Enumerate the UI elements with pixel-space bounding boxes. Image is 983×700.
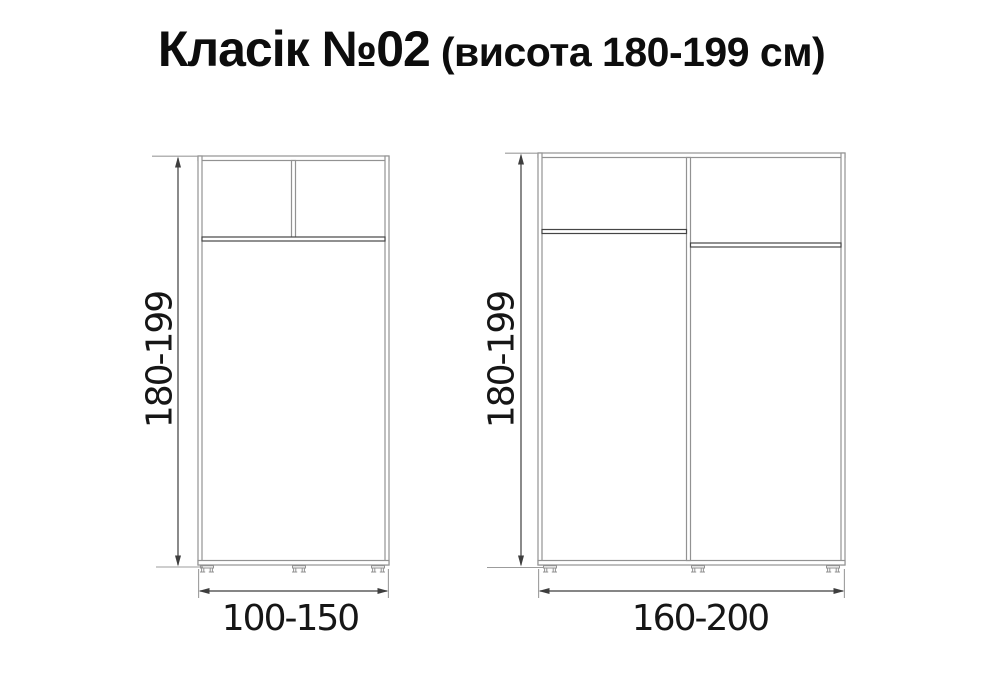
mezzanine-shelf [202,237,385,241]
arrow-down-icon [175,556,181,567]
right-height-dimension-label: 180-199 [482,292,523,429]
arrow-right-icon [834,588,845,594]
left-extension-lines [152,156,388,598]
wardrobe-foot [371,566,385,572]
right-mezzanine-shelf [691,243,842,247]
left-wardrobe-drawing: 180-199 100-150 [140,156,390,639]
page: { "title": { "main": "Класік №02", "sub"… [0,0,983,700]
wardrobe-dimension-diagram: 180-199 100-150 [0,0,983,700]
top-panel [538,153,845,158]
arrow-left-icon [199,588,210,594]
arrow-up-icon [518,154,524,165]
top-panel [198,156,389,161]
left-height-dimension-label: 180-199 [140,292,181,429]
right-width-dimension-label: 160-200 [632,598,769,639]
arrow-left-icon [539,588,550,594]
right-wardrobe-drawing: 180-199 160-200 [482,153,846,639]
left-wardrobe-panels [198,156,389,572]
left-side-panel [198,156,202,565]
arrow-down-icon [518,556,524,567]
wardrobe-foot [543,566,557,572]
center-divider [687,158,691,561]
mezzanine-divider [292,161,296,238]
right-side-panel [385,156,389,565]
wardrobe-foot [826,566,840,572]
right-wardrobe-panels [538,153,845,572]
bottom-panel [538,561,845,566]
bottom-panel [198,561,389,566]
right-height-dimension: 180-199 [482,154,525,567]
arrow-up-icon [175,157,181,168]
left-height-dimension: 180-199 [140,157,182,567]
wardrobe-foot [691,566,705,572]
left-width-dimension-label: 100-150 [222,598,359,639]
left-width-dimension: 100-150 [199,588,389,639]
right-width-dimension: 160-200 [539,588,845,639]
left-side-panel [538,153,542,565]
wardrobe-foot [292,566,306,572]
arrow-right-icon [378,588,389,594]
left-mezzanine-shelf [542,230,687,234]
right-side-panel [841,153,845,565]
